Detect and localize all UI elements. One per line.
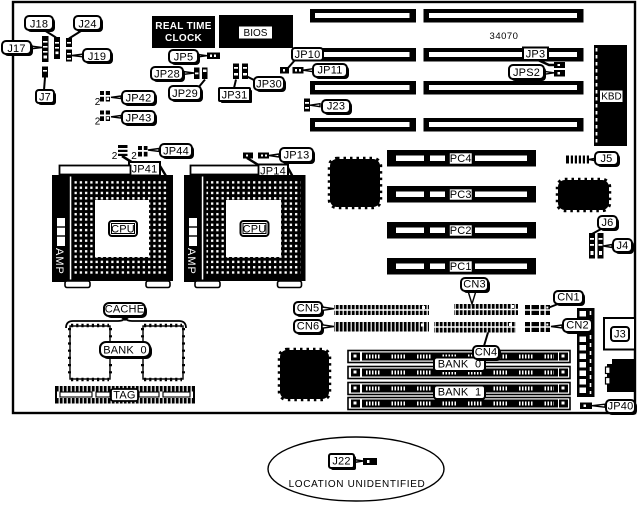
svg-text:LOCATION UNIDENTIFIED: LOCATION UNIDENTIFIED — [289, 479, 426, 490]
svg-text:CPU: CPU — [111, 224, 135, 236]
svg-text:J19: J19 — [88, 51, 106, 63]
svg-text:TAG: TAG — [113, 390, 135, 402]
svg-text:CN4: CN4 — [475, 347, 498, 359]
svg-text:JP40: JP40 — [608, 401, 634, 413]
svg-text:CN2: CN2 — [566, 320, 589, 332]
svg-text:J17: J17 — [7, 43, 25, 55]
svg-text:PC4: PC4 — [450, 153, 472, 165]
svg-text:J6: J6 — [601, 217, 613, 229]
svg-text:CN1: CN1 — [557, 292, 580, 304]
svg-text:J23: J23 — [327, 101, 345, 113]
svg-text:JP30: JP30 — [256, 79, 282, 91]
svg-text:J3: J3 — [614, 329, 626, 341]
svg-text:PC3: PC3 — [450, 189, 472, 201]
svg-text:JP13: JP13 — [284, 150, 310, 162]
svg-text:J4: J4 — [616, 240, 628, 252]
svg-text:JP44: JP44 — [163, 146, 189, 158]
svg-text:CN3: CN3 — [463, 279, 486, 291]
svg-text:J22: J22 — [332, 456, 350, 468]
svg-text:J5: J5 — [600, 153, 612, 165]
svg-text:PC1: PC1 — [450, 261, 472, 273]
svg-text:J24: J24 — [78, 19, 96, 31]
svg-text:JP28: JP28 — [154, 69, 180, 81]
svg-text:JP31: JP31 — [222, 90, 248, 102]
svg-text:2: 2 — [95, 117, 101, 128]
svg-text:JP10: JP10 — [295, 49, 321, 61]
svg-text:2: 2 — [95, 97, 101, 108]
svg-text:CN6: CN6 — [297, 321, 320, 333]
svg-text:AMP: AMP — [185, 248, 197, 275]
svg-text:CACHE: CACHE — [105, 304, 145, 316]
svg-text:2: 2 — [131, 151, 137, 162]
svg-text:JP11: JP11 — [317, 65, 342, 77]
svg-text:JP29: JP29 — [172, 88, 198, 100]
svg-text:J7: J7 — [39, 92, 51, 104]
svg-text:BANK 1: BANK 1 — [438, 387, 482, 399]
svg-text:BANK 0: BANK 0 — [438, 359, 482, 371]
svg-text:BANK 0: BANK 0 — [103, 345, 147, 357]
svg-text:34070: 34070 — [490, 31, 519, 42]
svg-text:REAL TIME: REAL TIME — [155, 21, 211, 32]
svg-text:JPS2: JPS2 — [513, 67, 540, 79]
svg-text:2: 2 — [112, 151, 118, 162]
svg-text:CLOCK: CLOCK — [165, 33, 203, 44]
svg-text:JP5: JP5 — [174, 52, 194, 64]
svg-text:JP43: JP43 — [126, 113, 152, 125]
svg-text:KBD: KBD — [601, 92, 622, 103]
svg-text:J18: J18 — [30, 19, 48, 31]
svg-text:BIOS: BIOS — [244, 28, 268, 39]
svg-text:PC2: PC2 — [450, 225, 472, 237]
svg-text:AMP: AMP — [53, 248, 65, 275]
svg-text:JP41: JP41 — [132, 164, 158, 176]
svg-text:JP42: JP42 — [126, 93, 152, 105]
svg-text:CPU: CPU — [243, 224, 267, 236]
svg-text:JP3: JP3 — [526, 49, 546, 61]
svg-text:CN5: CN5 — [297, 303, 320, 315]
